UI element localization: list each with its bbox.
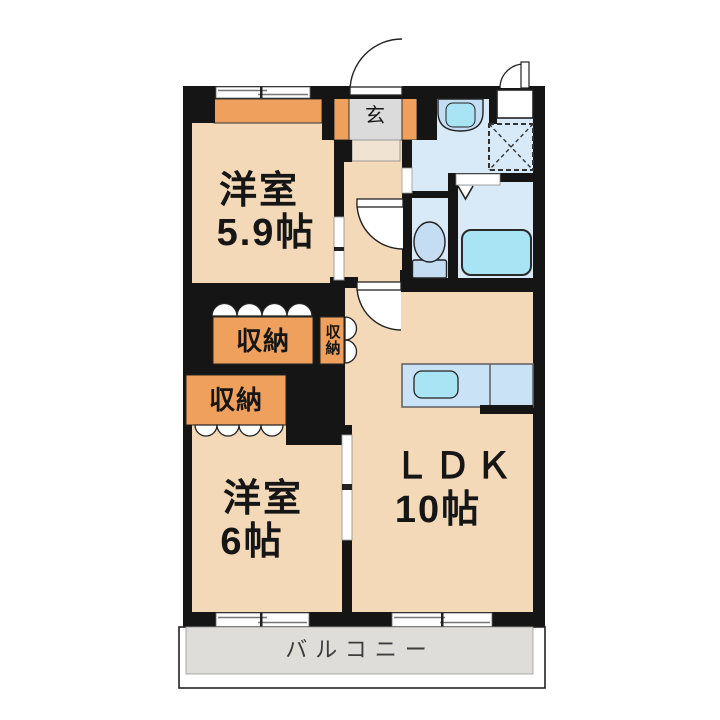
vanity-basin [438,99,483,131]
entrance-side-strip [334,92,349,140]
room59-sliding-door [334,217,344,280]
wall-segment [489,86,497,124]
door-leaf [357,199,403,207]
floor-plan-canvas [0,0,720,720]
wall-segment [402,278,533,292]
sliding-door-tick [334,247,344,251]
room-6-name-label: 洋室 [223,480,303,518]
room-59-name-label: 洋室 [219,172,299,210]
room6-sliding-door [342,435,352,540]
wall-segment [183,86,215,123]
vanity-bowl [446,103,475,127]
toilet-bowl [414,222,445,262]
entrance-side-strip [402,92,417,140]
wall-segment [448,182,458,280]
wall-segment [533,86,545,627]
balcony-label: バルコニー [285,639,435,661]
floor-plan: 洋室 5.9帖 玄 収納 収納 収納 洋室 6帖 ＬＤＫ 10帖 バルコニー [0,0,720,720]
window-top [216,87,310,98]
window-mullion [260,613,263,627]
room-59-size-label: 5.9帖 [217,214,316,252]
kitchen-counter [402,364,533,414]
shoe-cabinet [497,90,533,118]
counter-wall-stub [480,405,533,414]
kitchen-sink [414,371,458,398]
wall-segment [286,375,345,425]
sliding-door-tick [342,484,352,490]
room-6-size-label: 6帖 [220,523,283,561]
wall-segment [402,140,412,168]
entrance-step [352,140,400,161]
window-mullion [441,613,444,627]
door-leaf [350,87,402,95]
ldk-size-label: 10帖 [395,491,481,529]
storage-upper-label: 収納 [236,328,290,354]
window-mullion [260,87,263,98]
wall-segment [334,140,352,162]
storage-side-label: 収納 [325,324,340,356]
door-leaf [521,62,529,88]
wall-segment [400,270,413,292]
wall-segment [183,317,213,364]
toilet [413,222,447,278]
storage-lower-label: 収納 [209,387,263,413]
door-leaf [357,282,401,290]
wall-segment [417,86,437,140]
washroom-opening [402,168,412,193]
bath-door-opening [456,174,500,185]
wall-segment [183,364,345,375]
door-swing-area [350,39,402,91]
wall-segment [313,317,320,364]
ldk-name-label: ＬＤＫ [393,448,516,484]
entrance-label: 玄 [365,106,385,126]
exterior-storage-door [497,62,533,118]
room-59-top-strip [214,99,322,123]
bathtub [462,230,531,275]
entrance-door [350,39,402,95]
wall-segment [322,86,334,140]
